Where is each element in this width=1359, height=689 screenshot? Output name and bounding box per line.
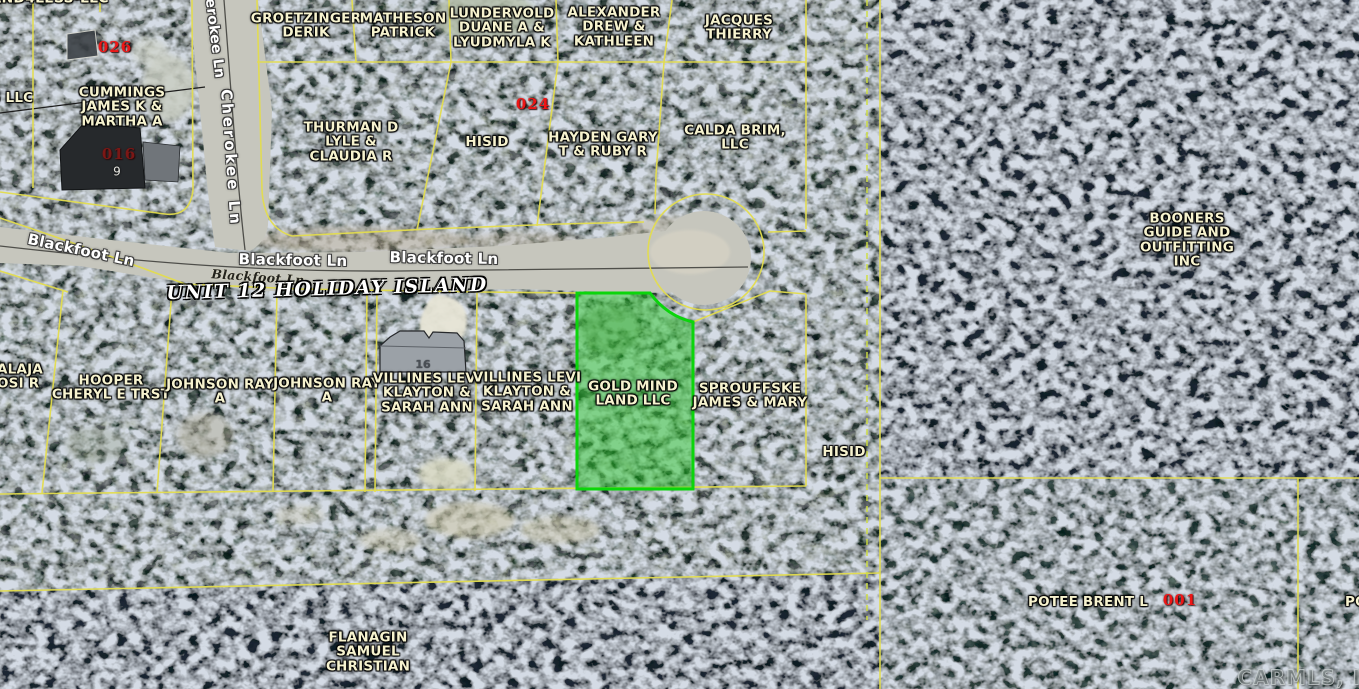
- parcel-label-hooper[interactable]: HOOPER CHERYL E TRST: [52, 374, 170, 403]
- carmls-watermark: CARMLS, INC: [1237, 667, 1359, 688]
- house-number-9: 9: [113, 166, 121, 179]
- parcel-label-groetzinger[interactable]: GROETZINGER DERIK: [251, 12, 361, 41]
- parcel-label-villines-b[interactable]: VILLINES LEVI KLAYTON & SARAH ANN: [473, 371, 582, 414]
- parcel-label-gold-mind[interactable]: GOLD MIND LAND LLC: [588, 380, 678, 409]
- parcel-label-alaja[interactable]: ALAJA OSI R: [0, 363, 43, 392]
- satellite-map-canvas: [0, 0, 1359, 689]
- parcel-label-thurman[interactable]: THURMAN D LYLE & CLAUDIA R: [304, 121, 399, 164]
- parcel-label-hisid-east[interactable]: HISID: [822, 445, 865, 459]
- parcel-number-016: 016: [102, 147, 136, 163]
- parcel-label-jacques[interactable]: JACQUES THIERRY: [705, 14, 773, 43]
- parcel-label-booners[interactable]: BOONERS GUIDE AND OUTFITTING INC: [1140, 211, 1234, 268]
- parcel-label-cummings[interactable]: CUMMINGS JAMES K & MARTHA A: [79, 86, 165, 129]
- parcel-map-viewport: LAND4LESS-LLC S LLC CUMMINGS JAMES K & M…: [0, 0, 1359, 689]
- road-label-blackfoot-right: Blackfoot Ln: [389, 250, 498, 268]
- parcel-label-potee[interactable]: POTEE BRENT L: [1028, 595, 1148, 609]
- parcel-label-potee-partial[interactable]: PO: [1345, 595, 1359, 609]
- parcel-label-hayden[interactable]: HAYDEN GARY T & RUBY R: [548, 131, 658, 160]
- road-label-blackfoot-center: Blackfoot Ln: [238, 252, 347, 270]
- parcel-number-001: 001: [1163, 593, 1197, 609]
- parcel-label-matheson[interactable]: MATHESON PATRICK: [360, 12, 447, 41]
- parcel-number-026: 026: [98, 40, 132, 56]
- parcel-label-villines-a[interactable]: VILLINES LEVI KLAYTON & SARAH ANN: [373, 372, 482, 415]
- parcel-label-lundervold[interactable]: LUNDERVOLD DUANE A & LYUDMYLA K: [450, 7, 555, 50]
- parcel-label-johnson-ray-b[interactable]: JOHNSON RAY A: [273, 377, 381, 406]
- parcel-label-s-llc[interactable]: S LLC: [0, 91, 33, 105]
- parcel-label-alexander[interactable]: ALEXANDER DREW & KATHLEEN: [567, 6, 660, 49]
- parcel-number-024: 024: [516, 97, 550, 113]
- parcel-label-calda-brim[interactable]: CALDA BRIM, LLC: [684, 124, 786, 153]
- parcel-label-flanagin[interactable]: FLANAGIN SAMUEL CHRISTIAN: [326, 631, 410, 674]
- house-number-16: 16: [415, 359, 430, 371]
- parcel-label-sprouffske[interactable]: SPROUFFSKE JAMES & MARY: [693, 382, 808, 411]
- parcel-label-johnson-ray-a[interactable]: JOHNSON RAY A: [166, 378, 274, 407]
- parcel-label-land4less[interactable]: LAND4LESS-LLC: [0, 0, 109, 6]
- parcel-label-hisid-west[interactable]: HISID: [465, 135, 508, 149]
